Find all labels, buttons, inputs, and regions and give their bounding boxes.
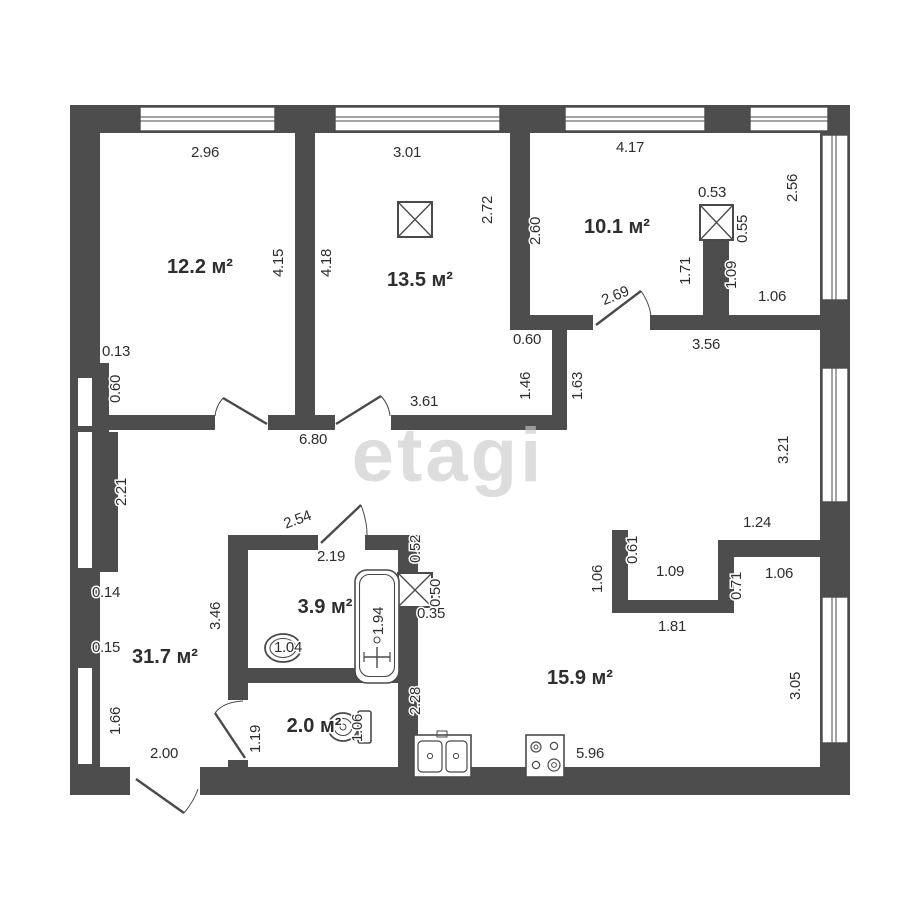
dimension-label: 0.13 — [102, 343, 130, 360]
dimension-label: 1.04 — [274, 639, 302, 656]
dimension-label: 1.09 — [656, 563, 684, 580]
window — [140, 107, 275, 131]
door-opening — [228, 700, 248, 760]
window — [565, 107, 705, 131]
floor-plan-svg: etagi12.2 м²13.5 м²10.1 м²31.7 м²3.9 м²2… — [0, 0, 900, 900]
window — [335, 107, 500, 131]
dimension-label: 3.61 — [410, 393, 438, 410]
door-opening — [593, 315, 650, 330]
dimension-label: 3.21 — [775, 436, 792, 464]
dimension-label: 0.71 — [728, 572, 745, 600]
wall-niche — [78, 432, 92, 568]
window — [750, 107, 828, 131]
dimension-label: 3.56 — [692, 336, 720, 353]
dimension-label: 1.81 — [658, 618, 686, 635]
floor-plan-image: etagi12.2 м²13.5 м²10.1 м²31.7 м²3.9 м²2… — [0, 0, 900, 900]
window — [822, 597, 848, 743]
wall — [612, 600, 734, 613]
dimension-label: 1.09 — [723, 261, 740, 289]
window — [822, 368, 848, 502]
window — [822, 135, 848, 300]
dimension-label: 0.52 — [407, 535, 424, 563]
wall-niche — [78, 378, 92, 426]
wall — [718, 540, 820, 557]
wall — [295, 133, 315, 430]
dimension-label: 1.66 — [107, 707, 124, 735]
dimension-label: 2.00 — [150, 745, 178, 762]
dimension-label: 3.05 — [787, 672, 804, 700]
dimension-label: 4.17 — [616, 139, 644, 156]
dimension-label: 1.06 — [349, 714, 366, 742]
dimension-label: 1.06 — [765, 565, 793, 582]
door-opening — [215, 415, 268, 430]
room-area-label: 2.0 м² — [287, 715, 342, 737]
dimension-label: 0.50 — [427, 579, 444, 607]
dimension-label: 5.96 — [576, 745, 604, 762]
wall-niche — [78, 668, 92, 764]
dimension-label: 1.19 — [247, 725, 264, 753]
dimension-label: 1.94 — [370, 607, 387, 635]
dimension-label: 2.28 — [407, 687, 424, 715]
dimension-label: 1.24 — [743, 514, 771, 531]
dimension-label: 1.46 — [517, 372, 534, 400]
watermark: etagi — [352, 413, 544, 498]
room-area-label: 15.9 м² — [547, 667, 613, 689]
dimension-label: 0.14 — [92, 584, 120, 601]
wall — [228, 535, 318, 550]
dimension-label: 2.96 — [191, 144, 219, 161]
dimension-label: 6.80 — [299, 431, 327, 448]
dimension-label: 3.01 — [393, 144, 421, 161]
dimension-label: 1.06 — [589, 565, 606, 593]
dimension-label: 0.60 — [107, 375, 124, 403]
dimension-label: 0.53 — [698, 184, 726, 201]
dimension-label: 2.56 — [784, 174, 801, 202]
dimension-label: 1.71 — [677, 257, 694, 285]
wall — [510, 315, 820, 330]
dimension-label: 0.55 — [734, 215, 751, 243]
dimension-label: 4.18 — [318, 249, 335, 277]
dimension-label: 0.15 — [92, 639, 120, 656]
room-area-label: 3.9 м² — [298, 596, 353, 618]
stove — [526, 735, 564, 777]
dimension-label: 0.60 — [513, 331, 541, 348]
dimension-label: 2.19 — [317, 548, 345, 565]
dimension-label: 2.60 — [527, 217, 544, 245]
dimension-label: 2.21 — [113, 478, 130, 506]
room-area-label: 12.2 м² — [167, 256, 233, 278]
room-area-label: 13.5 м² — [387, 269, 453, 291]
dimension-label: 1.06 — [758, 288, 786, 305]
dimension-label: 4.15 — [270, 249, 287, 277]
dimension-label: 0.61 — [624, 536, 641, 564]
dimension-label: 1.63 — [569, 372, 586, 400]
room-area-label: 31.7 м² — [132, 646, 198, 668]
room-area-label: 10.1 м² — [584, 216, 650, 238]
wall — [552, 330, 567, 430]
dimension-label: 3.46 — [207, 602, 224, 630]
dimension-label: 2.72 — [479, 196, 496, 224]
